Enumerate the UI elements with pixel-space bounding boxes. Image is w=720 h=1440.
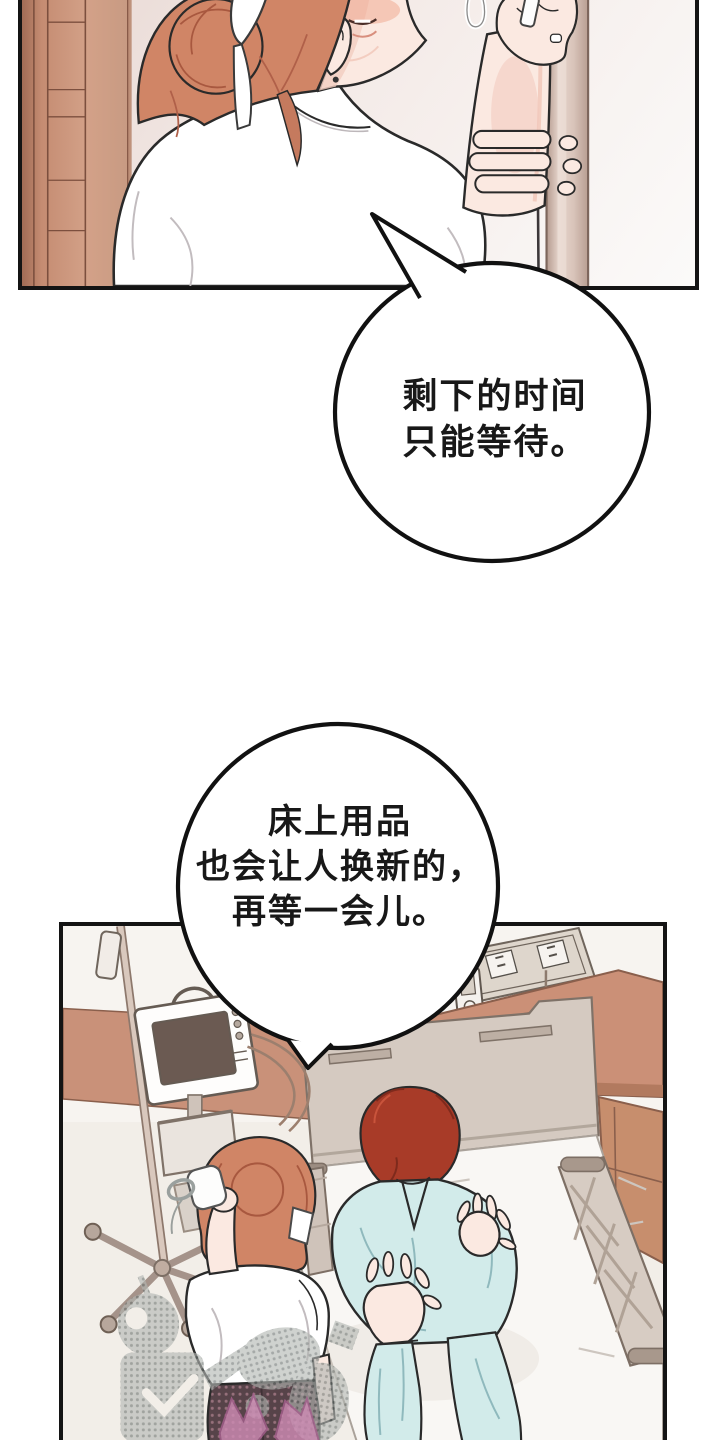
- speech-line: 床上用品: [168, 800, 512, 845]
- speech-line: 剩下的时间: [320, 374, 670, 420]
- earring: [333, 77, 339, 83]
- speech-line: 只能等待。: [320, 420, 670, 466]
- speech-text-2: 床上用品 也会让人换新的， 再等一会儿。: [168, 800, 512, 935]
- patient-hair: [361, 1087, 460, 1184]
- hand-gripping-pole: [469, 131, 581, 195]
- speech-bubble-1: 剩下的时间 只能等待。: [320, 198, 670, 570]
- speech-line: 也会让人换新的，: [168, 845, 512, 890]
- speech-text-1: 剩下的时间 只能等待。: [320, 374, 670, 466]
- speech-bubble-2: 床上用品 也会让人换新的， 再等一会儿。: [168, 712, 512, 1080]
- speech-line: 再等一会儿。: [168, 890, 512, 935]
- bubble-tail: [288, 1040, 332, 1068]
- comic-page: 剩下的时间 只能等待。 床上用品 也会让人换新的， 再等一会儿。: [0, 0, 720, 1440]
